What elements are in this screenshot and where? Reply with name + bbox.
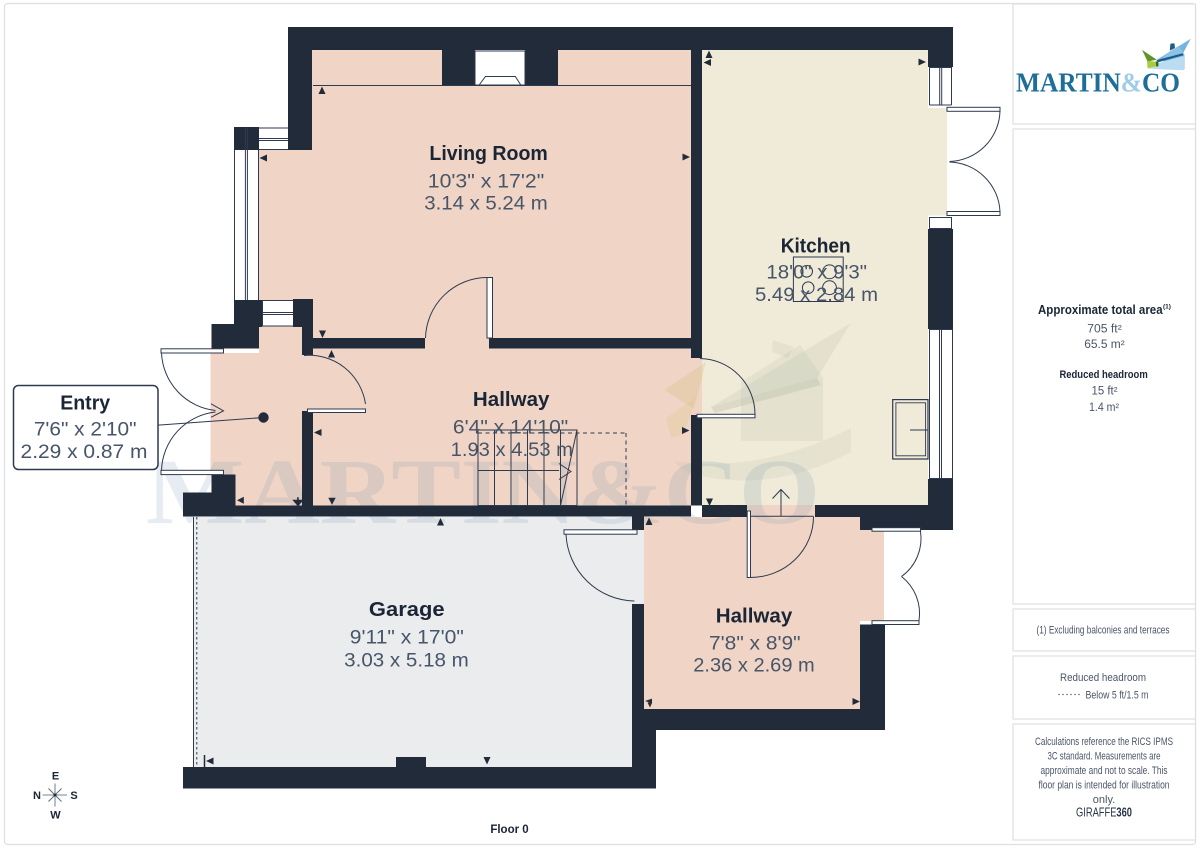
- svg-text:2.36 x 2.69 m: 2.36 x 2.69 m: [693, 656, 815, 677]
- svg-text:(1): (1): [1163, 304, 1171, 311]
- svg-text:18'0" x 9'3": 18'0" x 9'3": [766, 263, 867, 284]
- svg-text:7'8" x 8'9": 7'8" x 8'9": [709, 634, 801, 655]
- svg-text:Below 5 ft/1.5 m: Below 5 ft/1.5 m: [1086, 690, 1149, 702]
- svg-text:(1) Excluding balconies and te: (1) Excluding balconies and terraces: [1037, 625, 1170, 637]
- svg-text:GIRAFFE360: GIRAFFE360: [1076, 805, 1132, 820]
- svg-text:3C standard. Measurements are: 3C standard. Measurements are: [1048, 751, 1161, 763]
- svg-text:1.93 x 4.53 m: 1.93 x 4.53 m: [451, 440, 573, 461]
- svg-text:Reduced headroom: Reduced headroom: [1059, 369, 1147, 381]
- svg-text:Hallway: Hallway: [473, 389, 550, 411]
- svg-text:Entry: Entry: [60, 393, 111, 415]
- svg-text:N: N: [33, 790, 41, 802]
- svg-text:Floor 0: Floor 0: [490, 824, 528, 836]
- svg-text:Reduced headroom: Reduced headroom: [1060, 672, 1146, 684]
- svg-text:Calculations reference the RIC: Calculations reference the RICS IPMS: [1035, 736, 1173, 748]
- svg-text:S: S: [70, 790, 77, 802]
- svg-text:3.14 x 5.24 m: 3.14 x 5.24 m: [424, 194, 548, 215]
- svg-text:approximate and not to scale.: approximate and not to scale. This: [1041, 765, 1168, 777]
- svg-text:E: E: [52, 771, 59, 783]
- svg-text:Garage: Garage: [369, 599, 445, 621]
- svg-text:7'6" x 2'10": 7'6" x 2'10": [34, 420, 137, 441]
- svg-text:9'11" x 17'0": 9'11" x 17'0": [350, 628, 464, 649]
- svg-text:705 ft²: 705 ft²: [1087, 323, 1122, 335]
- svg-text:10'3" x 17'2": 10'3" x 17'2": [428, 172, 545, 193]
- svg-text:Hallway: Hallway: [716, 606, 793, 628]
- svg-text:65.5 m²: 65.5 m²: [1084, 339, 1125, 351]
- svg-text:1.4 m²: 1.4 m²: [1089, 402, 1119, 414]
- svg-text:6'4" x 14'10": 6'4" x 14'10": [453, 418, 568, 439]
- svg-text:MARTIN&CO: MARTIN&CO: [1016, 68, 1180, 98]
- svg-text:floor plan is intended for ill: floor plan is intended for illustration: [1039, 780, 1170, 792]
- svg-text:5.49 x 2.84 m: 5.49 x 2.84 m: [755, 285, 878, 306]
- svg-text:2.29 x 0.87 m: 2.29 x 0.87 m: [21, 442, 148, 463]
- svg-text:Approximate total area: Approximate total area: [1038, 303, 1163, 317]
- svg-text:Kitchen: Kitchen: [781, 236, 851, 258]
- svg-text:W: W: [50, 810, 61, 822]
- svg-text:15 ft²: 15 ft²: [1092, 385, 1118, 397]
- svg-text:Living Room: Living Room: [429, 143, 547, 165]
- svg-text:3.03 x 5.18 m: 3.03 x 5.18 m: [344, 651, 469, 672]
